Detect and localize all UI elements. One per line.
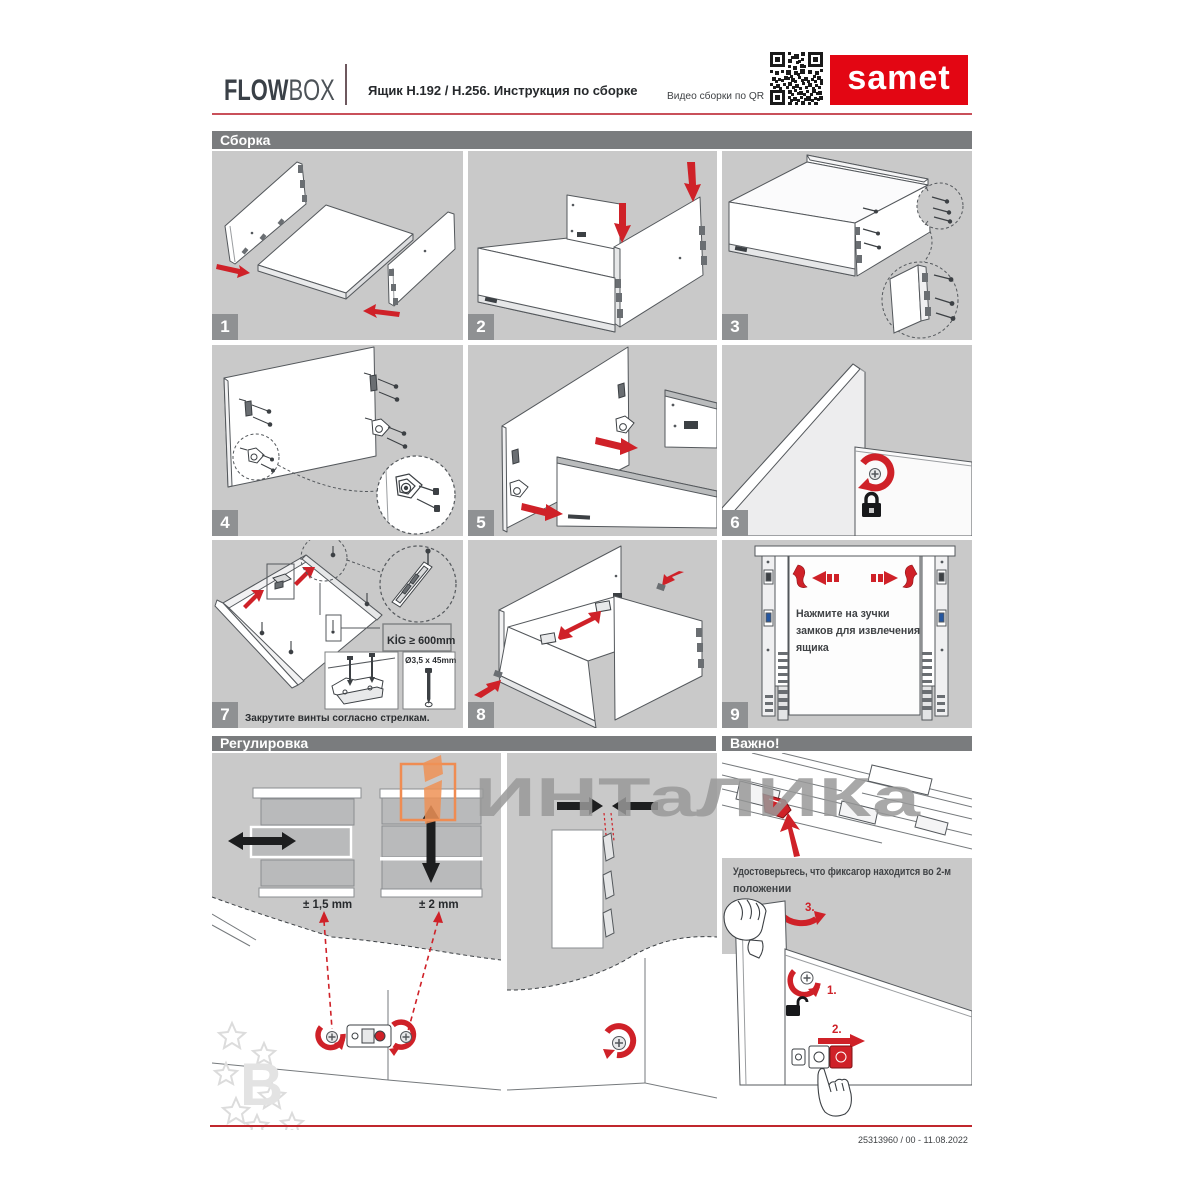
svg-text:Ø3,5 x 45mm: Ø3,5 x 45mm: [405, 655, 456, 665]
svg-text:KİG ≥ 600mm: KİG ≥ 600mm: [387, 634, 455, 647]
svg-text:ящика: ящика: [796, 642, 829, 654]
svg-text:Удостоверьтесь, что фиксагор н: Удостоверьтесь, что фиксагор находится в…: [733, 866, 951, 878]
svg-text:Нажмите на зучки: Нажмите на зучки: [796, 608, 890, 620]
svg-text:± 1,5 mm: ± 1,5 mm: [303, 899, 352, 911]
svg-text:замков для извлечения: замков для извлечения: [796, 625, 920, 637]
svg-text:2.: 2.: [832, 1024, 842, 1036]
svg-text:положении: положении: [733, 883, 791, 895]
svg-text:В: В: [240, 1051, 283, 1118]
svg-text:ИНТаЛИКа: ИНТаЛИКа: [474, 768, 921, 828]
svg-text:1.: 1.: [827, 985, 837, 997]
svg-text:3.: 3.: [805, 902, 815, 914]
svg-text:± 2 mm: ± 2 mm: [419, 899, 459, 911]
